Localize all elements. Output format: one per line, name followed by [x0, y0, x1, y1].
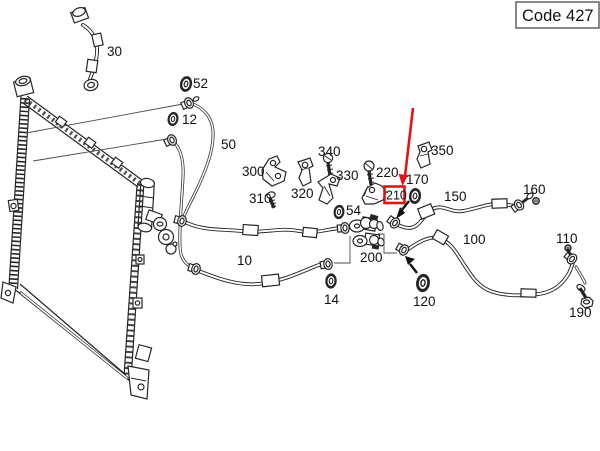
bracket-210-drawing — [362, 183, 386, 204]
part-label-330: 330 — [336, 168, 359, 183]
part-label-350: 350 — [431, 143, 454, 158]
part-label-12: 12 — [182, 112, 197, 127]
hose-30-drawing — [71, 6, 103, 92]
part-label-160: 160 — [523, 182, 546, 197]
clip-350-drawing — [417, 142, 432, 168]
leader-line-upper — [26, 104, 183, 133]
parts-diagram-page: 30 52 12 50 10 14 300 310 320 340 330 22… — [0, 0, 600, 451]
leader-line-lower — [33, 139, 167, 161]
grommet-170 — [408, 187, 422, 205]
connector-block-200-drawing — [350, 214, 385, 250]
hose-upper-left-drawing — [183, 221, 346, 232]
grommet-12 — [166, 111, 180, 127]
part-label-210: 210 — [386, 189, 407, 203]
radiator-valve-assembly — [146, 210, 177, 254]
part-label-50: 50 — [221, 137, 236, 152]
part-label-150: 150 — [444, 189, 467, 204]
part-label-110: 110 — [556, 231, 578, 246]
part-label-300: 300 — [242, 164, 265, 179]
part-label-100: 100 — [463, 232, 486, 247]
part-label-120: 120 — [413, 294, 436, 309]
part-label-340: 340 — [318, 144, 341, 159]
part-label-200: 200 — [360, 250, 383, 265]
part-label-14: 14 — [324, 292, 340, 307]
grommet-14 — [325, 273, 337, 289]
hose-sleeves — [243, 199, 536, 298]
part-label-52: 52 — [193, 76, 208, 91]
pointer-arrow-120 — [405, 256, 417, 273]
part-label-54: 54 — [346, 203, 362, 218]
radiator-filler-neck — [14, 75, 34, 97]
o-ring-160 — [533, 198, 539, 204]
code-badge-label: Code 427 — [522, 7, 594, 25]
clip-320-drawing — [298, 158, 313, 186]
part-label-220: 220 — [376, 165, 399, 180]
radiator-drawing — [1, 75, 177, 399]
parts-diagram-canvas: 30 52 12 50 10 14 300 310 320 340 330 22… — [0, 0, 600, 451]
part-label-10: 10 — [237, 253, 252, 268]
grommet-54 — [333, 204, 346, 220]
grommet-52 — [178, 75, 193, 93]
leader-hose10-to-block — [334, 236, 350, 263]
screw-220-drawing — [364, 161, 374, 185]
hose-100-drawing — [407, 238, 574, 296]
part-label-310: 310 — [249, 191, 272, 206]
highlight-arrow-line — [405, 108, 413, 176]
code-badge: Code 427 — [516, 2, 599, 28]
grommet-120 — [415, 273, 431, 293]
part-label-30: 30 — [107, 44, 122, 59]
part-label-170: 170 — [406, 172, 429, 187]
bracket-300-drawing — [262, 156, 286, 186]
part-label-320: 320 — [291, 186, 314, 201]
part-label-190: 190 — [569, 305, 592, 320]
